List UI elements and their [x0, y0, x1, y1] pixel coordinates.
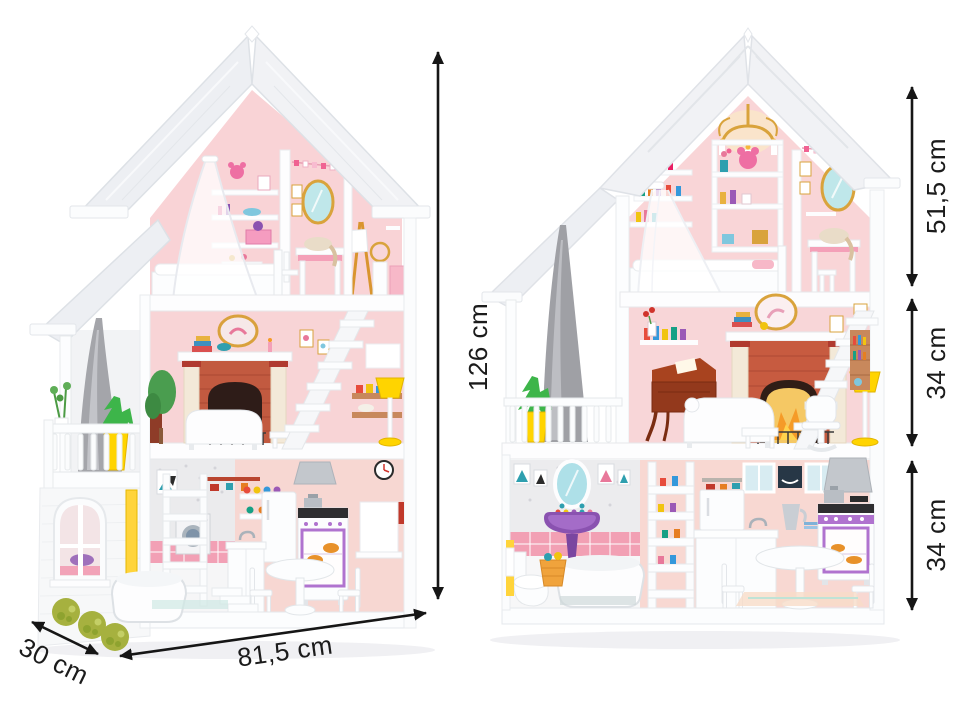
- ground-floor-dimension-label: 34 cm: [921, 487, 951, 583]
- middle-floor-dimension-label: 34 cm: [921, 315, 951, 411]
- mini-fridge: [700, 490, 744, 530]
- front-balcony: [504, 196, 629, 446]
- stove: [298, 494, 348, 605]
- product-image: 126 cm 81,5 cm 30 cm 51,5 cm 34 cm 34 cm: [0, 0, 960, 720]
- attic-floor-slab: [620, 292, 878, 307]
- arched-window: [50, 498, 110, 587]
- chaise-lounge: [684, 398, 778, 448]
- right-house-shadow: [490, 631, 900, 649]
- right-wall: [404, 218, 416, 628]
- left-dollhouse: [30, 26, 435, 659]
- window-opening: [366, 344, 400, 368]
- range-hood: [294, 462, 336, 484]
- height-dimension-label: 126 cm: [463, 282, 493, 412]
- base-slab: [502, 608, 884, 624]
- balcony-pickets: [510, 406, 611, 442]
- attic-floor-slab: [140, 295, 416, 311]
- bowl-art: [778, 466, 802, 488]
- middle-floor-slab: [140, 443, 416, 459]
- top-floor-dimension-label: 51,5 cm: [921, 128, 951, 244]
- wall-clock: [375, 461, 393, 479]
- portrait: [219, 316, 257, 346]
- right-dollhouse: [482, 28, 900, 649]
- bathtub: [112, 571, 186, 622]
- wall-bookshelf: [850, 330, 870, 390]
- bath-mat: [152, 600, 228, 609]
- balcony-rail: [504, 398, 622, 406]
- kitchen-window: [356, 502, 402, 558]
